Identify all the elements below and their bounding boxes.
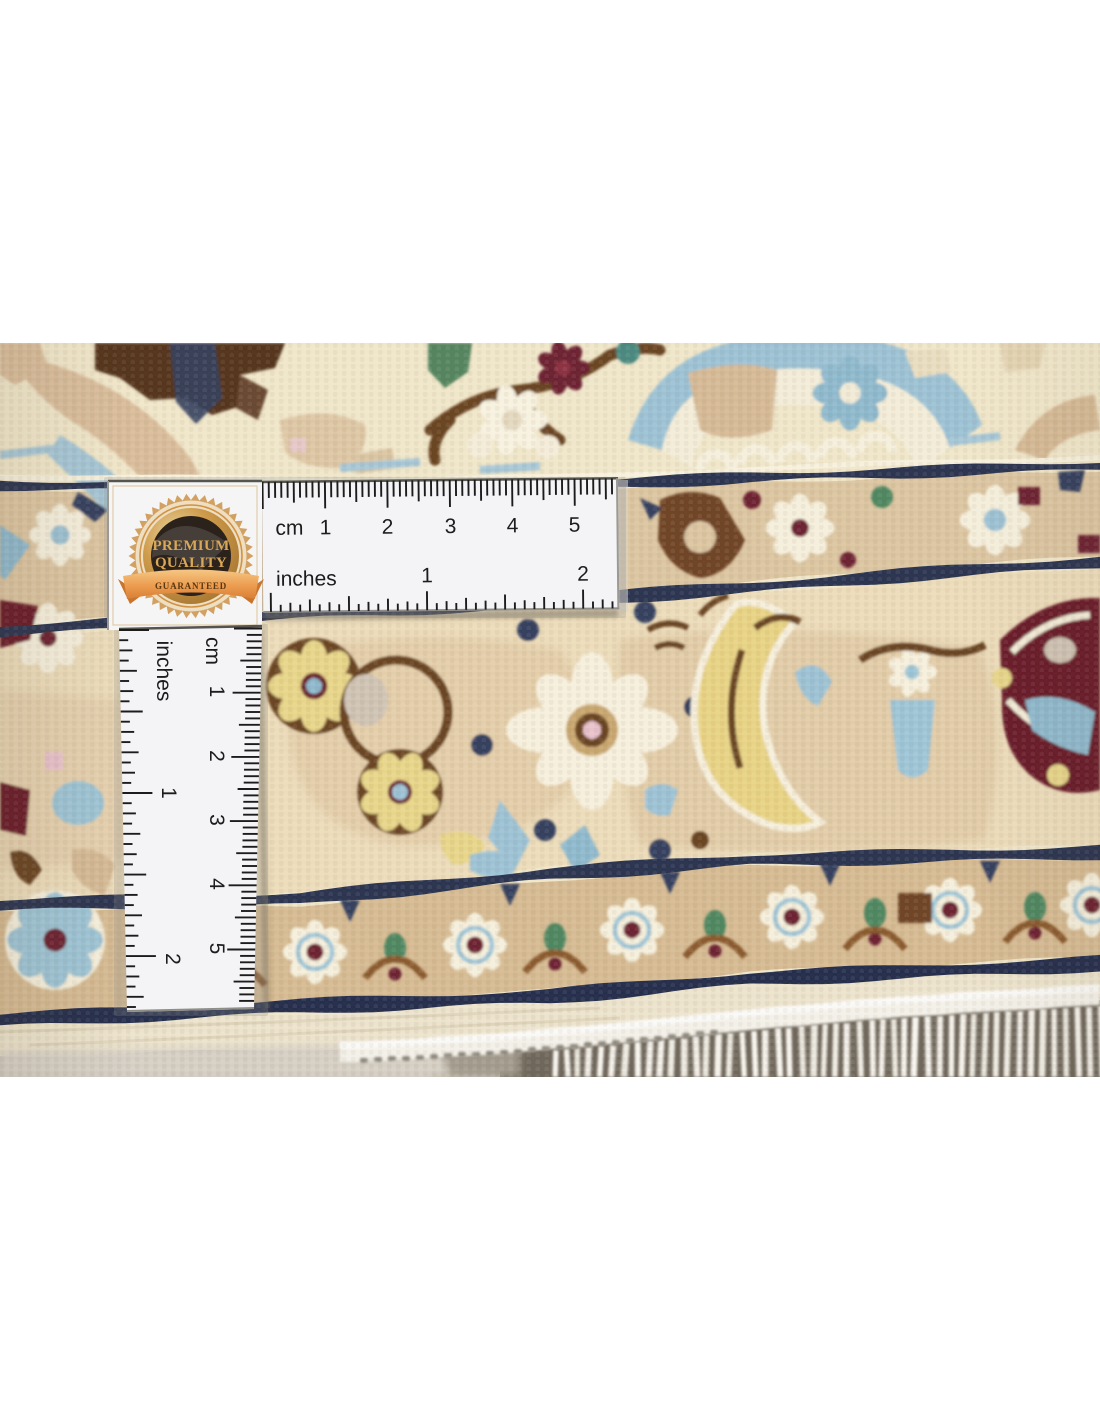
svg-text:4: 4 — [205, 878, 228, 890]
svg-text:2: 2 — [205, 750, 228, 762]
svg-text:2: 2 — [161, 953, 184, 965]
svg-text:1: 1 — [157, 787, 180, 799]
svg-text:2: 2 — [382, 516, 394, 539]
svg-text:5: 5 — [569, 514, 581, 537]
svg-text:1: 1 — [205, 686, 228, 698]
svg-text:2: 2 — [577, 563, 589, 586]
svg-text:1: 1 — [421, 564, 433, 587]
svg-text:3: 3 — [205, 814, 228, 826]
svg-text:PREMIUM: PREMIUM — [152, 538, 229, 554]
svg-text:3: 3 — [445, 515, 457, 538]
svg-text:5: 5 — [205, 943, 228, 955]
svg-text:inches: inches — [152, 641, 175, 702]
svg-text:cm: cm — [201, 637, 224, 665]
svg-text:inches: inches — [276, 567, 337, 591]
svg-text:1: 1 — [320, 516, 332, 539]
svg-text:GUARANTEED: GUARANTEED — [155, 581, 227, 591]
svg-text:cm: cm — [275, 517, 303, 540]
svg-text:4: 4 — [507, 514, 519, 537]
svg-text:QUALITY: QUALITY — [155, 555, 227, 571]
